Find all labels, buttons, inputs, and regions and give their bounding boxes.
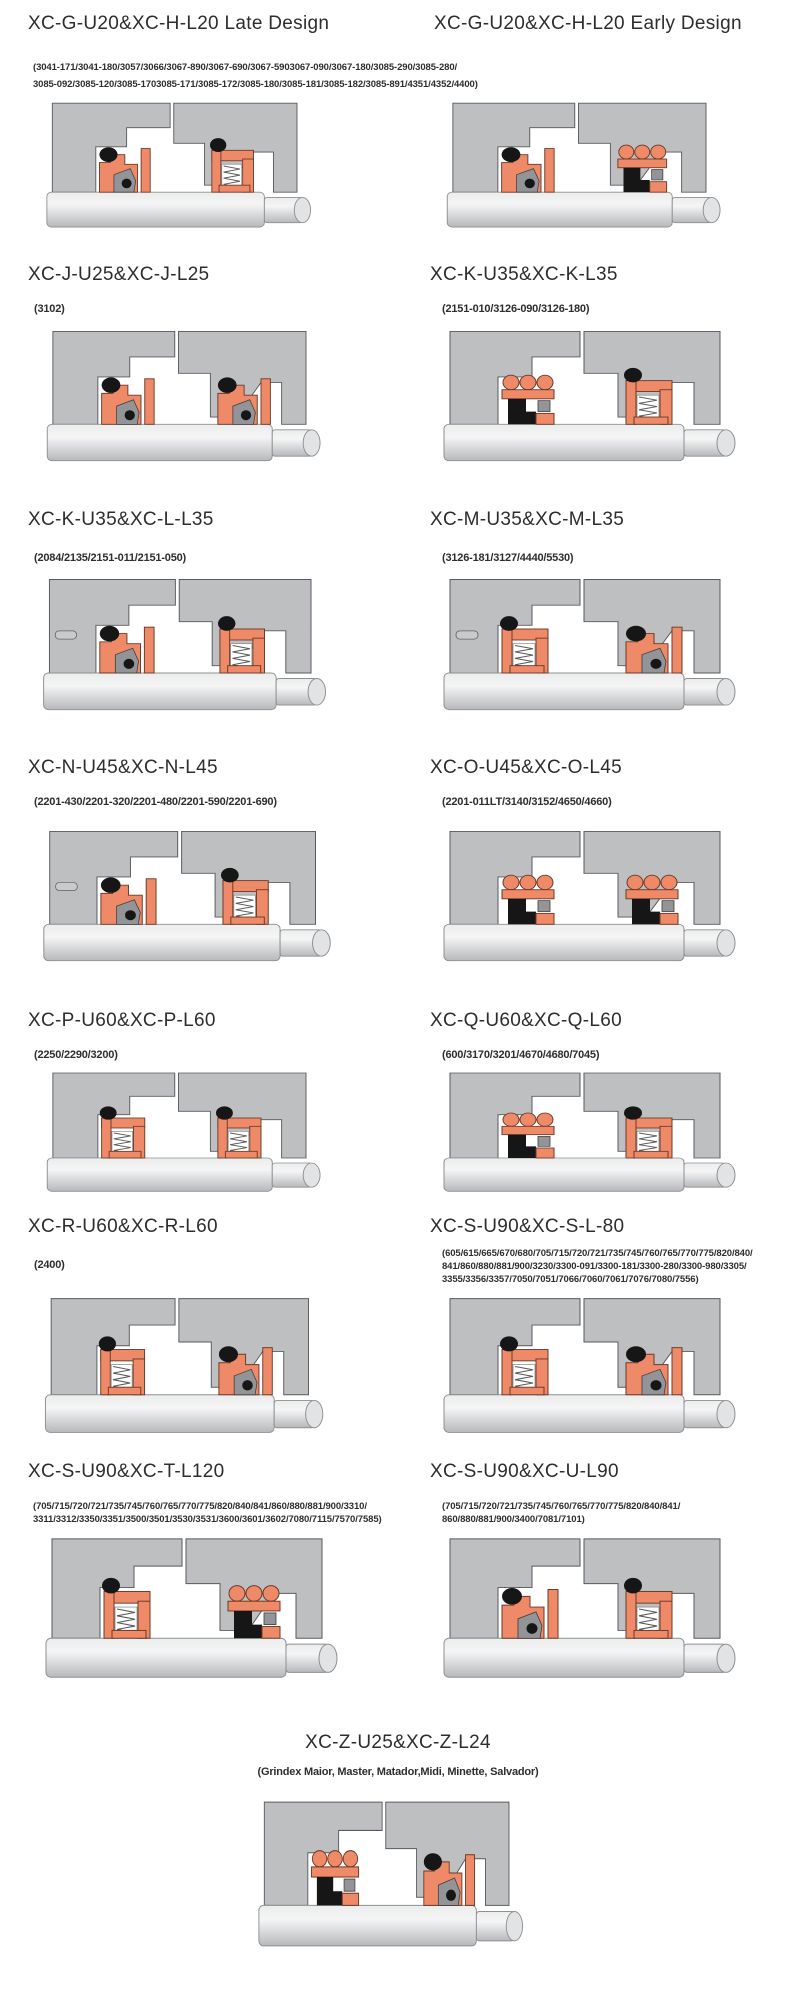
title-xc-g-late: XC-G-U20&XC-H-L20 Late Design	[28, 13, 329, 35]
parts-xc-q: (600/3170/3201/4670/4680/7045)	[442, 1049, 599, 1061]
parts-xc-u-line1: (705/715/720/721/735/745/760/765/770/775…	[442, 1501, 680, 1512]
title-xc-j: XC-J-U25&XC-J-L25	[28, 264, 209, 286]
seal-diagram-xc-s-l80	[432, 1293, 752, 1440]
title-xc-n: XC-N-U45&XC-N-L45	[28, 757, 218, 779]
seal-diagram-xc-g-early	[436, 98, 736, 234]
parts-xc-n: (2201-430/2201-320/2201-480/2201-590/220…	[34, 796, 277, 808]
title-xc-g-early: XC-G-U20&XC-H-L20 Early Design	[434, 13, 742, 35]
parts-xc-s-l80-line1: (605/615/665/670/680/705/715/720/721/735…	[442, 1248, 753, 1259]
title-xc-kl: XC-K-U35&XC-L-L35	[28, 509, 214, 531]
catalog-page: XC-G-U20&XC-H-L20 Late Design XC-G-U20&X…	[0, 0, 796, 2004]
title-xc-o: XC-O-U45&XC-O-L45	[430, 757, 622, 779]
parts-xc-kl: (2084/2135/2151-011/2151-050)	[34, 552, 186, 564]
title-xc-z: XC-Z-U25&XC-Z-L24	[0, 1732, 796, 1754]
title-xc-q: XC-Q-U60&XC-Q-L60	[430, 1010, 622, 1032]
title-xc-u: XC-S-U90&XC-U-L90	[430, 1461, 619, 1483]
parts-xc-u-line2: 860/880/881/900/3400/7081/7101)	[442, 1514, 585, 1525]
title-xc-k: XC-K-U35&XC-K-L35	[430, 264, 618, 286]
title-xc-p: XC-P-U60&XC-P-L60	[28, 1010, 216, 1032]
parts-xc-t-line1: (705/715/720/721/735/745/760/765/770/775…	[33, 1501, 367, 1512]
seal-diagram-xc-r	[34, 1293, 339, 1440]
seal-diagram-xc-k	[432, 326, 752, 468]
parts-xc-s-l80-line2: 841/860/880/881/900/3230/3300-091/3300-1…	[442, 1261, 747, 1272]
title-xc-s-l80: XC-S-U90&XC-S-L-80	[430, 1216, 624, 1238]
seal-diagram-xc-u	[432, 1533, 752, 1685]
seal-diagram-xc-j	[36, 326, 336, 468]
seal-diagram-xc-m	[432, 574, 752, 717]
seal-diagram-xc-n	[32, 826, 347, 968]
parts-xc-g-line1: (3041-171/3041-180/3057/3066/3067-890/30…	[33, 62, 457, 73]
parts-xc-r: (2400)	[34, 1259, 65, 1271]
parts-xc-s-l80-line3: 3355/3356/3357/7050/7051/7066/7060/7061/…	[442, 1274, 699, 1285]
parts-xc-o: (2201-011LT/3140/3152/4650/4660)	[442, 796, 612, 808]
seal-diagram-xc-z	[248, 1796, 538, 1954]
parts-xc-j: (3102)	[34, 303, 65, 315]
seal-diagram-xc-q	[432, 1068, 752, 1198]
parts-xc-k: (2151-010/3126-090/3126-180)	[442, 303, 589, 315]
parts-xc-p: (2250/2290/3200)	[34, 1049, 118, 1061]
title-xc-r: XC-R-U60&XC-R-L60	[28, 1216, 218, 1238]
seal-diagram-xc-g-late	[36, 98, 326, 234]
seal-diagram-xc-t	[34, 1533, 354, 1685]
parts-xc-t-line2: 3311/3312/3350/3351/3500/3501/3530/3531/…	[33, 1514, 382, 1525]
title-xc-t: XC-S-U90&XC-T-L120	[28, 1461, 225, 1483]
seal-diagram-xc-p	[36, 1068, 336, 1198]
title-xc-m: XC-M-U35&XC-M-L35	[430, 509, 624, 531]
parts-xc-z: (Grindex Maior, Master, Matador,Midi, Mi…	[0, 1766, 796, 1778]
parts-xc-m: (3126-181/3127/4440/5530)	[442, 552, 573, 564]
seal-diagram-xc-o	[432, 826, 752, 968]
parts-xc-g-line2: 3085-092/3085-120/3085-1703085-171/3085-…	[33, 79, 478, 90]
seal-diagram-xc-kl	[32, 574, 342, 717]
